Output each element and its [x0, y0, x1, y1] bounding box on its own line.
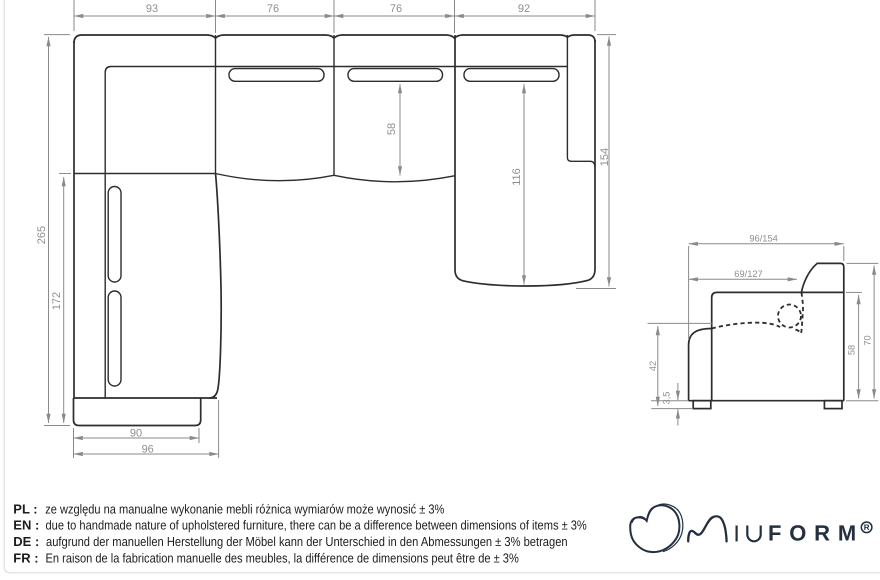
svg-text:90: 90: [130, 428, 142, 440]
svg-text:FR :En raison de la fabricatio: FR :En raison de la fabrication manuelle…: [13, 551, 519, 566]
svg-text:58: 58: [846, 345, 856, 355]
svg-text:58: 58: [386, 123, 398, 135]
svg-text:76: 76: [267, 3, 279, 15]
svg-text:3,5: 3,5: [661, 392, 671, 405]
svg-text:R: R: [864, 523, 870, 532]
svg-text:EN :due to handmade nature of: EN :due to handmade nature of upholstere…: [13, 518, 587, 533]
svg-text:FORM: FORM: [768, 521, 864, 546]
svg-text:96/154: 96/154: [749, 234, 777, 244]
svg-text:93: 93: [146, 3, 158, 15]
svg-text:42: 42: [648, 361, 658, 371]
svg-text:70: 70: [862, 335, 872, 345]
svg-text:265: 265: [36, 226, 48, 244]
svg-text:76: 76: [390, 3, 402, 15]
svg-text:69/127: 69/127: [734, 269, 762, 279]
svg-text:116: 116: [511, 168, 523, 186]
svg-text:DE :aufgrund der manuellen Her: DE :aufgrund der manuellen Herstellung d…: [13, 534, 567, 549]
svg-text:PL :ze względu na manualne wyk: PL :ze względu na manualne wykonanie meb…: [13, 502, 444, 517]
svg-text:92: 92: [518, 3, 530, 15]
svg-text:172: 172: [51, 292, 63, 310]
svg-text:96: 96: [142, 443, 154, 455]
svg-text:154: 154: [599, 148, 611, 166]
